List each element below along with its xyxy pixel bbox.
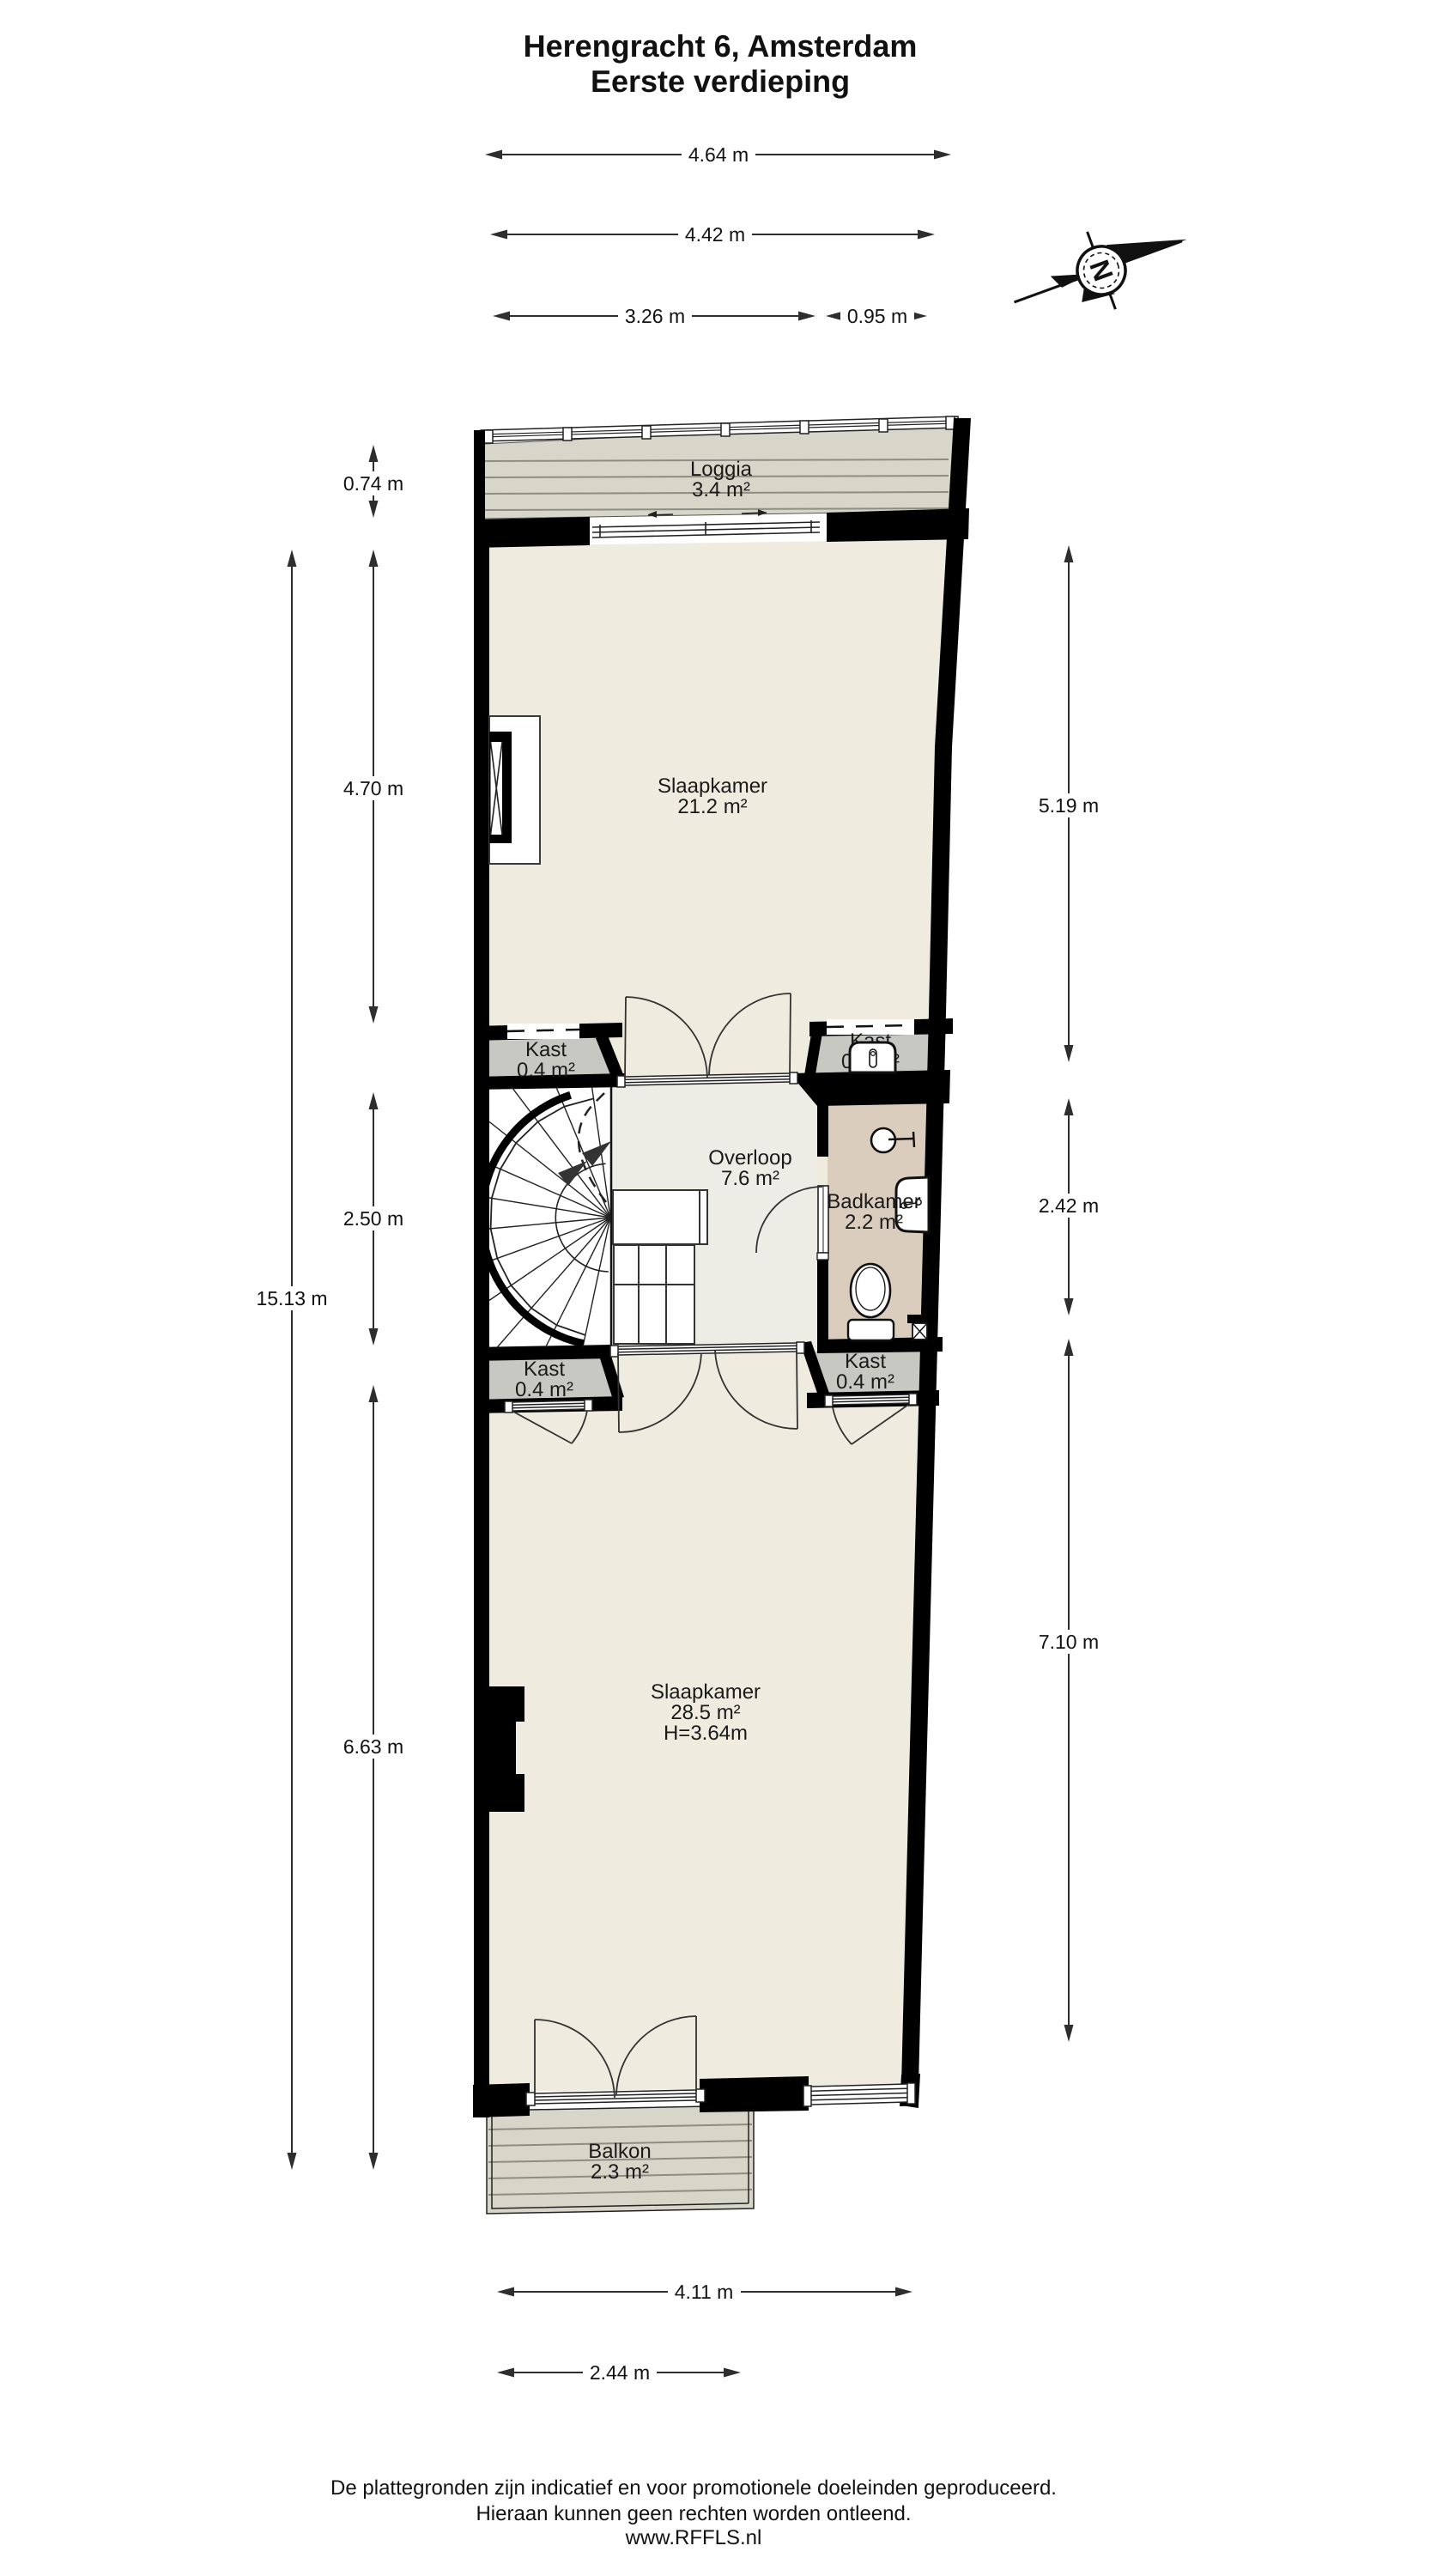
- svg-text:Overloop: Overloop: [708, 1146, 791, 1170]
- svg-text:www.RFFLS.nl: www.RFFLS.nl: [625, 2526, 762, 2549]
- svg-text:3.26 m: 3.26 m: [625, 305, 685, 327]
- svg-text:2.50 m: 2.50 m: [343, 1207, 403, 1230]
- svg-text:7.6 m²: 7.6 m²: [721, 1167, 779, 1190]
- svg-text:2.2 m²: 2.2 m²: [845, 1211, 903, 1234]
- svg-text:Kast: Kast: [524, 1358, 565, 1381]
- svg-text:0.4 m²: 0.4 m²: [515, 1378, 573, 1401]
- svg-text:6.63 m: 6.63 m: [343, 1735, 403, 1758]
- svg-text:Badkamer: Badkamer: [827, 1190, 920, 1213]
- svg-text:0.74 m: 0.74 m: [343, 472, 403, 495]
- svg-text:Hieraan kunnen geen rechten wo: Hieraan kunnen geen rechten worden ontle…: [476, 2502, 911, 2525]
- svg-text:Loggia: Loggia: [690, 458, 753, 481]
- svg-text:Eerste verdieping: Eerste verdieping: [591, 64, 850, 99]
- svg-text:0.4 m²: 0.4 m²: [836, 1370, 894, 1394]
- svg-text:4.42 m: 4.42 m: [685, 223, 745, 246]
- svg-text:2.42 m: 2.42 m: [1039, 1194, 1099, 1217]
- svg-text:Balkon: Balkon: [588, 2140, 651, 2163]
- svg-text:De plattegronden zijn indicati: De plattegronden zijn indicatief en voor…: [330, 2476, 1057, 2500]
- svg-text:3.4 m²: 3.4 m²: [692, 478, 750, 501]
- svg-text:Slaapkamer: Slaapkamer: [658, 775, 767, 798]
- svg-text:4.64 m: 4.64 m: [688, 143, 749, 166]
- svg-text:15.13 m: 15.13 m: [256, 1287, 327, 1309]
- svg-text:0.4 m²: 0.4 m²: [517, 1059, 575, 1082]
- svg-text:4.70 m: 4.70 m: [343, 777, 403, 799]
- svg-text:Kast: Kast: [845, 1350, 886, 1373]
- svg-text:7.10 m: 7.10 m: [1039, 1631, 1099, 1653]
- svg-text:5.19 m: 5.19 m: [1039, 794, 1099, 817]
- svg-text:4.11 m: 4.11 m: [675, 2281, 734, 2303]
- svg-text:Herengracht 6, Amsterdam: Herengracht 6, Amsterdam: [524, 28, 918, 64]
- svg-text:Slaapkamer: Slaapkamer: [651, 1680, 761, 1704]
- svg-text:2.44 m: 2.44 m: [590, 2361, 650, 2384]
- svg-text:0.95 m: 0.95 m: [847, 305, 907, 327]
- svg-text:H=3.64m: H=3.64m: [664, 1722, 748, 1745]
- svg-text:28.5 m²: 28.5 m²: [670, 1701, 740, 1724]
- svg-text:21.2 m²: 21.2 m²: [677, 795, 747, 818]
- svg-text:Kast: Kast: [525, 1038, 567, 1061]
- svg-text:2.3 m²: 2.3 m²: [591, 2160, 649, 2184]
